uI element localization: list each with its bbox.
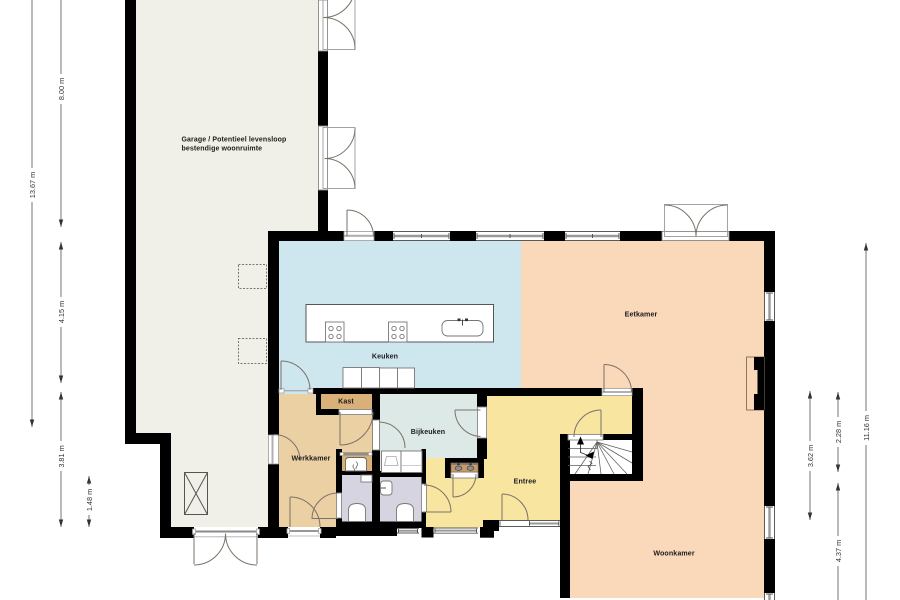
svg-text:2.28 m: 2.28 m	[834, 421, 843, 443]
svg-text:Kast: Kast	[338, 398, 354, 406]
svg-text:bestendige woonruimte: bestendige woonruimte	[182, 146, 263, 153]
svg-text:Garage / Potentieel levensloop: Garage / Potentieel levensloop	[182, 137, 287, 144]
svg-text:Eetkamer: Eetkamer	[625, 311, 658, 319]
svg-text:3.62 m: 3.62 m	[806, 445, 815, 467]
svg-text:Werkkamer: Werkkamer	[291, 455, 330, 463]
svg-text:Entree: Entree	[514, 478, 537, 486]
svg-text:Bijkeuken: Bijkeuken	[411, 428, 445, 436]
svg-text:1.48 m: 1.48 m	[85, 489, 94, 511]
svg-text:11.16 m: 11.16 m	[862, 415, 871, 441]
svg-text:Keuken: Keuken	[372, 353, 398, 361]
svg-text:Woonkamer: Woonkamer	[653, 550, 695, 558]
svg-text:3.81 m: 3.81 m	[57, 445, 66, 467]
svg-text:8.00 m: 8.00 m	[57, 78, 66, 100]
svg-text:4.37 m: 4.37 m	[834, 540, 843, 562]
svg-text:13.67 m: 13.67 m	[28, 172, 37, 198]
svg-text:4.15 m: 4.15 m	[57, 301, 66, 323]
